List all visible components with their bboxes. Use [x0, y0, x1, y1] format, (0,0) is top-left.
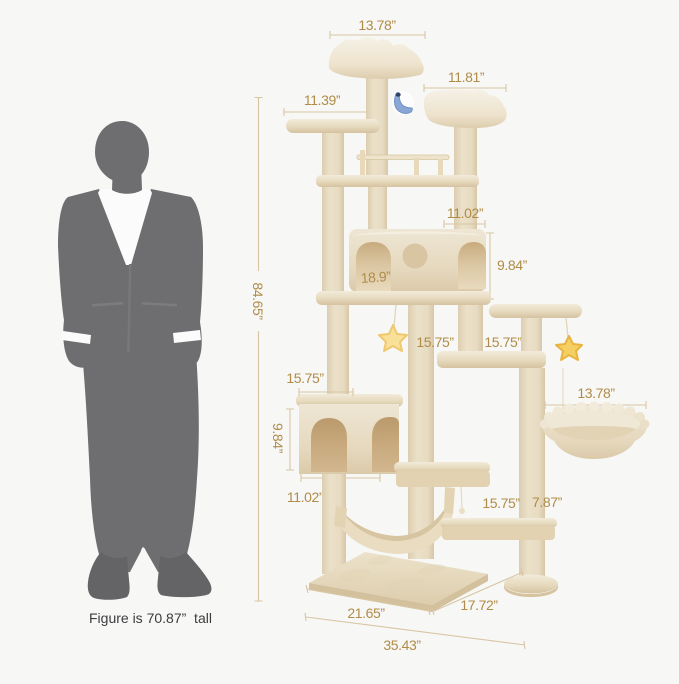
svg-text:13.78”: 13.78”	[577, 385, 615, 401]
svg-text:35.43”: 35.43”	[383, 637, 421, 653]
svg-text:13.78”: 13.78”	[358, 17, 396, 33]
svg-text:11.81”: 11.81”	[448, 69, 485, 85]
svg-text:18.9”: 18.9”	[360, 268, 392, 286]
svg-text:84.65”: 84.65”	[250, 282, 266, 320]
svg-text:11.02”: 11.02”	[287, 489, 324, 505]
svg-text:15.75”: 15.75”	[416, 334, 454, 350]
svg-text:15.75”: 15.75”	[482, 495, 520, 511]
svg-text:Figure is 70.87” tall: Figure is 70.87” tall	[89, 610, 212, 626]
svg-text:7.87”: 7.87”	[532, 494, 563, 510]
svg-text:21.65”: 21.65”	[347, 605, 385, 621]
svg-text:15.75”: 15.75”	[286, 370, 324, 386]
svg-text:15.75”: 15.75”	[484, 334, 522, 350]
svg-text:11.39”: 11.39”	[304, 92, 341, 108]
svg-text:9.84”: 9.84”	[270, 423, 286, 454]
svg-text:17.72”: 17.72”	[460, 597, 498, 613]
svg-text:11.02”: 11.02”	[447, 205, 484, 221]
svg-text:9.84”: 9.84”	[497, 257, 528, 273]
